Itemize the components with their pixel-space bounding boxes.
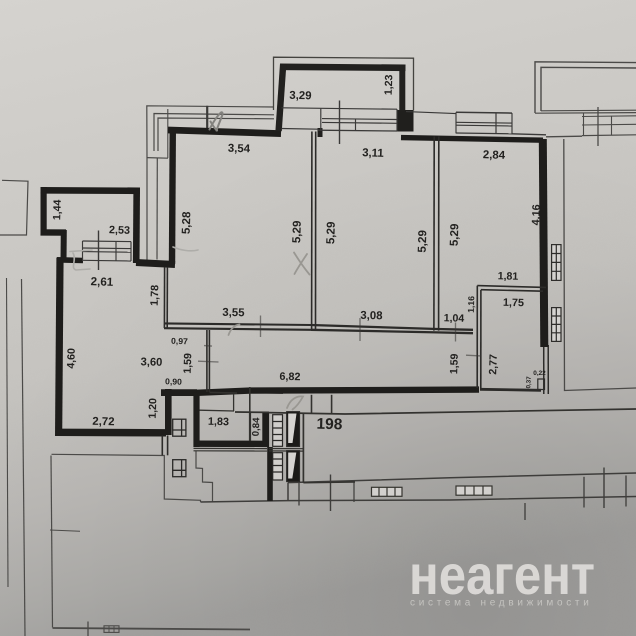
- svg-text:1,44: 1,44: [51, 199, 64, 220]
- svg-text:0,90: 0,90: [165, 376, 182, 386]
- svg-text:1,78: 1,78: [149, 285, 162, 306]
- svg-text:1,20: 1,20: [147, 398, 160, 419]
- svg-text:1,04: 1,04: [443, 312, 464, 325]
- svg-text:2,77: 2,77: [487, 354, 500, 375]
- svg-text:5,29: 5,29: [290, 220, 304, 244]
- svg-text:3,55: 3,55: [222, 307, 245, 320]
- svg-text:0,22: 0,22: [533, 370, 546, 377]
- svg-text:6,82: 6,82: [279, 371, 300, 384]
- svg-text:0,97: 0,97: [171, 336, 188, 346]
- svg-text:3,60: 3,60: [140, 356, 162, 369]
- svg-text:0,37: 0,37: [525, 376, 532, 389]
- svg-text:1,81: 1,81: [497, 270, 518, 283]
- svg-text:4,16: 4,16: [530, 204, 543, 225]
- svg-text:3,29: 3,29: [289, 90, 311, 103]
- svg-text:1,83: 1,83: [208, 416, 229, 429]
- svg-text:1,16: 1,16: [466, 296, 477, 313]
- svg-text:2,72: 2,72: [92, 416, 114, 429]
- svg-text:2,53: 2,53: [109, 224, 130, 237]
- svg-text:5,29: 5,29: [448, 223, 462, 247]
- svg-text:1,59: 1,59: [182, 353, 195, 374]
- svg-text:4,60: 4,60: [65, 348, 78, 369]
- svg-text:1,59: 1,59: [448, 353, 461, 374]
- svg-text:3,54: 3,54: [228, 143, 251, 156]
- svg-text:2,61: 2,61: [90, 275, 114, 289]
- svg-text:198: 198: [316, 416, 343, 434]
- svg-text:5,29: 5,29: [416, 229, 430, 253]
- svg-text:1,23: 1,23: [383, 74, 396, 95]
- svg-text:5,29: 5,29: [324, 221, 338, 245]
- svg-text:5,28: 5,28: [180, 211, 194, 235]
- svg-text:3,11: 3,11: [362, 147, 385, 160]
- svg-text:3,08: 3,08: [360, 310, 382, 323]
- svg-text:0,84: 0,84: [251, 417, 263, 437]
- svg-text:2,84: 2,84: [483, 149, 506, 162]
- svg-text:1,75: 1,75: [503, 297, 524, 310]
- svg-text:система недвижимости: система недвижимости: [410, 598, 592, 609]
